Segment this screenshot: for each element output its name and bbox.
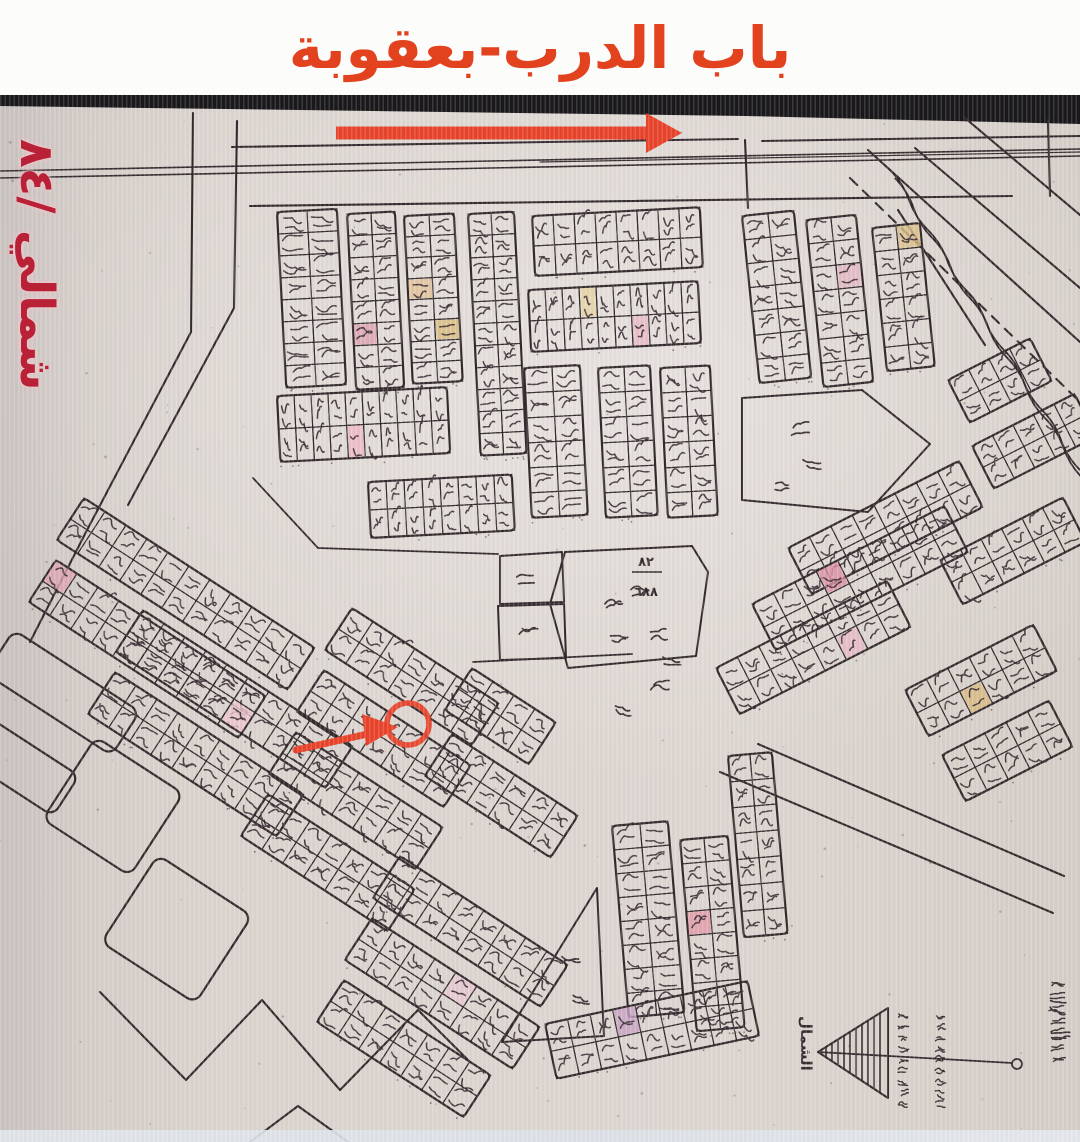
plot-number-scribble <box>1010 668 1028 684</box>
direction-arrow-head <box>646 113 682 153</box>
plot-cell <box>493 256 517 279</box>
plot-cell <box>522 788 557 823</box>
plot-number-scribble <box>710 868 727 886</box>
plot-number-scribble <box>746 919 760 929</box>
highlighted-plot <box>348 426 365 458</box>
plot-number-scribble <box>600 248 613 268</box>
handwriting-scribble <box>605 600 623 608</box>
plot-cell <box>225 628 260 663</box>
plot-cell <box>935 529 968 563</box>
plot-cell <box>313 426 332 460</box>
plot-cell <box>684 886 710 912</box>
handwriting-scribble <box>573 995 589 1004</box>
plot-number-scribble <box>290 851 308 867</box>
plot-number-scribble <box>600 297 608 312</box>
plot-number-scribble <box>737 788 748 800</box>
plot-number-scribble <box>882 501 900 520</box>
large-parcel <box>742 390 930 512</box>
plot-number-scribble <box>633 470 650 485</box>
plot-number-scribble <box>1035 710 1054 730</box>
north-axis-loop <box>1012 1059 1022 1069</box>
plot-number-scribble <box>971 744 988 760</box>
plot-number-scribble <box>635 288 642 308</box>
plot-number-scribble <box>462 484 473 500</box>
plot-number-scribble <box>651 290 662 316</box>
plot-number-scribble <box>436 398 444 421</box>
road-line <box>250 196 1012 206</box>
plot-cell <box>313 319 344 343</box>
legend-handwriting <box>936 1101 945 1108</box>
plot-number-scribble <box>499 512 509 526</box>
plot-number-scribble <box>837 224 852 236</box>
plot-number-scribble <box>435 1001 455 1020</box>
plot-number-scribble <box>663 218 674 235</box>
plot-number-scribble <box>383 366 398 385</box>
plot-block <box>612 820 685 1023</box>
plot-cell <box>885 345 911 371</box>
plot-number-scribble <box>384 326 395 342</box>
plot-number-scribble <box>982 762 1001 784</box>
plot-cell <box>141 573 176 608</box>
signature-scribble <box>1051 1018 1066 1024</box>
plot-number-scribble <box>392 506 402 531</box>
plot-number-scribble <box>950 754 968 772</box>
plot-block <box>442 668 556 769</box>
plot-block <box>422 734 578 862</box>
plot-cell <box>750 752 774 780</box>
cadastral-map-svg: ٨٢٦٨٨الشمال <box>0 95 1080 1142</box>
plot-cell <box>833 239 860 265</box>
plot-number-scribble <box>393 677 414 697</box>
plot-cell <box>359 1028 394 1063</box>
plot-number-scribble <box>1015 627 1039 655</box>
plot-number-scribble <box>350 398 358 417</box>
plot-cell <box>620 919 650 945</box>
plot-number-scribble <box>463 936 484 956</box>
plot-cell <box>979 381 1010 413</box>
plot-number-scribble <box>885 298 900 320</box>
plot-number-scribble <box>357 278 369 298</box>
road-line <box>250 1106 348 1142</box>
plot-number-scribble <box>818 294 835 314</box>
plot-cell <box>430 387 449 421</box>
plot-block <box>806 215 874 394</box>
plot-number-scribble <box>412 988 434 1010</box>
plot-number-scribble <box>751 236 766 263</box>
plot-block <box>872 223 935 376</box>
signature-scribble <box>1051 1045 1064 1051</box>
legend-handwriting <box>898 1026 908 1029</box>
plot-cell <box>838 286 865 312</box>
plot-number-scribble <box>382 1014 400 1032</box>
plot-number-scribble <box>445 511 456 530</box>
plot-cell <box>428 883 463 918</box>
plot-number-scribble <box>429 508 437 528</box>
plot-cell <box>562 287 581 319</box>
plot-cell <box>954 767 987 801</box>
large-parcel <box>550 546 708 668</box>
plot-number-scribble <box>496 241 509 251</box>
handwriting-scribble <box>651 629 668 640</box>
plot-number-scribble <box>1041 539 1056 554</box>
plot-number-scribble <box>1074 426 1080 441</box>
plot-cell <box>71 608 106 643</box>
plot-number-scribble <box>741 865 755 877</box>
plot-number-scribble <box>157 631 177 650</box>
plot-number-scribble <box>1011 455 1026 468</box>
handwriting-scribble <box>519 628 538 634</box>
plot-number-scribble <box>616 291 624 308</box>
plot-number-scribble <box>602 322 610 342</box>
plot-number-scribble <box>282 234 303 251</box>
plot-number-scribble <box>535 496 555 514</box>
plot-number-scribble <box>580 1053 595 1066</box>
plot-number-scribble <box>927 714 941 728</box>
plot-number-scribble <box>407 481 417 499</box>
plot-number-scribble <box>666 375 679 386</box>
vacant-parcel <box>101 855 252 1003</box>
plot-number-scribble <box>562 498 582 509</box>
plot-number-scribble <box>354 994 383 1027</box>
plot-number-scribble <box>413 241 425 253</box>
plot-cell <box>951 572 983 605</box>
plot-number-scribble <box>997 430 1015 448</box>
plot-cell <box>366 786 401 821</box>
plot-number-scribble <box>316 306 337 315</box>
plot-cell <box>682 312 701 344</box>
plot-cell <box>704 836 730 862</box>
plot-number-scribble <box>397 811 413 826</box>
plot-cell <box>396 389 415 423</box>
plot-cell <box>349 257 374 280</box>
plot-cell <box>652 965 682 991</box>
plot-cell <box>470 257 494 280</box>
plot-cell <box>714 955 740 981</box>
plot-cell <box>1033 530 1065 563</box>
plot-number-scribble <box>669 443 685 460</box>
plot-number-scribble <box>720 962 733 972</box>
plot-number-scribble <box>814 244 830 262</box>
plot-cell <box>353 807 388 842</box>
plot-number-scribble <box>669 1033 685 1048</box>
plot-number-scribble <box>476 278 489 295</box>
plot-cell <box>644 869 674 895</box>
plot-number-scribble <box>332 400 342 418</box>
plot-number-scribble <box>299 439 308 451</box>
plot-number-scribble <box>842 291 859 305</box>
plot-cell <box>317 1001 352 1036</box>
north-label: الشمال <box>797 1016 815 1071</box>
plot-number-scribble <box>627 903 643 914</box>
plot-number-scribble <box>621 215 634 240</box>
plot-number-scribble <box>889 354 905 364</box>
plot-number-scribble <box>57 605 75 622</box>
plot-number-scribble <box>903 494 920 509</box>
plot-cell <box>325 869 360 904</box>
plot-cell <box>332 794 367 829</box>
plot-number-scribble <box>645 829 664 845</box>
handwriting-scribble <box>803 460 821 469</box>
map-title: باب الدرب-بعقوبة <box>289 14 792 82</box>
plot-number-scribble <box>499 303 514 318</box>
plot-number-scribble <box>628 371 645 385</box>
plot-number-scribble <box>1016 723 1030 737</box>
plot-cell <box>364 424 383 458</box>
plot-cell <box>369 509 388 538</box>
plot-number-scribble <box>439 304 452 314</box>
plot-number-scribble <box>783 315 800 328</box>
plot-cell <box>527 416 556 442</box>
road-line <box>965 118 1080 215</box>
plot-number-scribble <box>433 219 450 231</box>
plot-cell <box>245 642 280 677</box>
plot-number-scribble <box>418 415 427 445</box>
plot-number-scribble <box>497 477 508 502</box>
handwriting-scribble <box>616 706 631 716</box>
plot-number-scribble <box>355 894 372 909</box>
plot-cell <box>379 932 414 967</box>
plot-number-scribble <box>882 257 896 270</box>
plot-cell <box>92 622 127 657</box>
plot-cell <box>866 581 899 615</box>
plot-cell <box>615 316 634 348</box>
plot-number-scribble <box>647 852 665 865</box>
plot-number-scribble <box>817 273 832 291</box>
plot-number-scribble <box>599 215 611 233</box>
plot-number-scribble <box>373 795 392 813</box>
plot-number-scribble <box>359 353 374 366</box>
plot-number-scribble <box>417 362 431 378</box>
plot-cell <box>735 832 759 860</box>
plot-number-scribble <box>410 222 424 236</box>
plot-cell <box>710 908 736 934</box>
plot-cell <box>325 629 360 664</box>
plot-cell <box>629 465 656 491</box>
plot-cell <box>130 720 165 755</box>
plot-number-scribble <box>686 215 695 230</box>
plot-cell <box>430 234 456 256</box>
plot-cell <box>775 282 803 309</box>
plot-number-scribble <box>754 755 768 778</box>
plot-number-scribble <box>667 282 678 317</box>
plot-number-scribble <box>903 254 919 265</box>
plot-cell <box>906 318 932 344</box>
plot-number-scribble <box>631 971 649 992</box>
plot-number-scribble <box>289 284 306 293</box>
plot-number-scribble <box>532 795 550 813</box>
plot-cell <box>916 472 949 506</box>
plot-number-scribble <box>443 483 453 499</box>
plot-cell <box>471 1021 506 1056</box>
plot-cell <box>120 560 155 595</box>
plot-number-scribble <box>876 234 892 244</box>
plot-cell <box>175 566 210 601</box>
plot-number-scribble <box>217 785 237 806</box>
plot-number-scribble <box>273 734 290 751</box>
plot-number-scribble <box>436 240 450 254</box>
plot-number-scribble <box>1007 378 1024 398</box>
plot-number-scribble <box>694 447 709 459</box>
legend-handwriting <box>936 1037 945 1041</box>
plot-number-scribble <box>574 1020 588 1038</box>
plot-number-scribble <box>506 413 521 427</box>
plot-number-scribble <box>403 433 411 450</box>
plot-number-scribble <box>107 554 126 574</box>
legend-handwriting <box>898 1081 908 1086</box>
plot-number-scribble <box>981 570 995 584</box>
plot-number-scribble <box>623 874 641 891</box>
large-parcel <box>502 888 604 1042</box>
plot-cell <box>875 249 901 275</box>
plot-cell <box>846 358 873 384</box>
plot-cell <box>780 330 808 357</box>
large-parcel <box>498 604 566 660</box>
plot-number-scribble <box>787 333 801 348</box>
plot-cell <box>379 390 398 424</box>
plot-number-scribble <box>412 262 427 271</box>
plot-number-scribble <box>604 416 622 437</box>
plot-cell <box>314 341 345 365</box>
legend-handwriting <box>898 1067 907 1072</box>
plot-number-scribble <box>353 241 368 250</box>
plot-cell <box>640 821 670 847</box>
plot-cell <box>488 796 523 831</box>
plot-number-scribble <box>582 250 591 263</box>
plot-number-scribble <box>840 246 855 258</box>
plot-number-scribble <box>694 943 708 959</box>
road-line <box>745 140 748 208</box>
plot-cell <box>347 213 372 236</box>
plot-number-scribble <box>764 364 779 376</box>
plot-number-scribble <box>1020 551 1037 566</box>
plot-cell <box>770 234 798 261</box>
plot-cell <box>831 515 864 549</box>
plot-number-scribble <box>369 742 384 756</box>
plot-number-scribble <box>150 707 169 725</box>
plot-number-scribble <box>429 967 448 984</box>
plot-number-scribble <box>293 366 311 381</box>
legend-handwriting <box>899 1047 909 1052</box>
plot-number-scribble <box>355 647 375 669</box>
plot-cell <box>498 343 522 366</box>
plot-cell <box>280 634 315 669</box>
plot-cell <box>528 441 557 467</box>
handwriting-scribble <box>792 422 810 435</box>
plot-cell <box>661 392 687 418</box>
plot-number-scribble <box>85 541 103 557</box>
plot-cell <box>408 980 443 1015</box>
plot-cell <box>618 895 648 921</box>
plot-cell <box>429 213 455 235</box>
plot-cell <box>91 512 126 547</box>
plot-cell <box>477 389 501 412</box>
plot-number-scribble <box>245 613 266 633</box>
plot-cell <box>374 821 409 856</box>
plot-number-scribble <box>495 216 508 232</box>
plot-number-scribble <box>561 418 578 437</box>
vacant-parcel <box>43 737 184 876</box>
plot-number-scribble <box>180 758 196 772</box>
plot-cell <box>354 345 379 368</box>
highlighted-plot <box>444 974 476 1006</box>
plot-number-scribble <box>569 318 577 339</box>
plot-number-scribble <box>849 335 864 352</box>
plot-number-scribble <box>883 281 897 296</box>
plot-cell <box>655 988 685 1014</box>
plot-number-scribble <box>985 530 1004 553</box>
plot-number-scribble <box>527 370 547 385</box>
plot-cell <box>757 830 781 858</box>
plot-number-scribble <box>504 325 517 347</box>
plot-cell <box>983 457 1014 489</box>
plot-number-scribble <box>478 328 492 342</box>
plot-cell <box>308 231 339 255</box>
plot-number-scribble <box>827 366 842 381</box>
plot-cell <box>99 546 134 581</box>
plot-cell <box>617 240 640 271</box>
plot-number-scribble <box>538 256 549 266</box>
plot-cell <box>664 442 690 468</box>
photo-top-dark-band <box>0 95 1080 124</box>
plot-number-scribble <box>602 371 619 390</box>
plot-number-scribble <box>622 246 635 262</box>
plot-cell <box>520 972 555 1007</box>
plot-number-scribble <box>562 472 580 484</box>
plot-cell <box>317 835 352 870</box>
plot-block <box>294 669 472 812</box>
direction-arrow <box>336 113 682 153</box>
plot-number-scribble <box>629 396 647 409</box>
plot-cell <box>457 931 492 966</box>
plot-number-scribble <box>695 475 711 486</box>
plot-number-scribble <box>649 876 669 890</box>
plot-number-scribble <box>208 615 234 643</box>
plot-cell <box>686 390 712 416</box>
plot-block <box>598 365 658 524</box>
plot-number-scribble <box>810 621 827 638</box>
plot-number-scribble <box>111 607 132 627</box>
plot-number-scribble <box>483 439 498 449</box>
plot-cell <box>112 525 147 560</box>
plot-cell <box>960 539 992 572</box>
plot-number-scribble <box>94 703 112 720</box>
plot-number-scribble <box>887 324 902 340</box>
plot-cell <box>411 341 437 363</box>
plot-cell <box>405 236 431 258</box>
plot-cell <box>555 244 578 275</box>
legend-handwriting <box>936 1079 946 1085</box>
plot-cell <box>508 730 543 765</box>
plot-number-scribble <box>794 544 812 561</box>
plot-block <box>545 981 760 1084</box>
plot-number-scribble <box>1049 506 1068 525</box>
plot-cell <box>534 245 557 276</box>
signature-scribble <box>1052 982 1065 986</box>
road-line <box>128 121 237 505</box>
plot-number-scribble <box>551 329 561 351</box>
plot-number-scribble <box>1001 646 1020 668</box>
plot-cell <box>581 317 600 349</box>
plot-block <box>660 365 718 517</box>
north-symbol: الشمال <box>797 982 1067 1107</box>
plot-number-scribble <box>452 695 472 714</box>
plot-cell <box>992 551 1024 584</box>
plot-number-scribble <box>401 395 409 415</box>
plot-number-scribble <box>318 347 340 357</box>
plot-number-scribble <box>291 327 308 342</box>
plot-cell <box>371 211 396 234</box>
large-parcel <box>500 552 564 604</box>
